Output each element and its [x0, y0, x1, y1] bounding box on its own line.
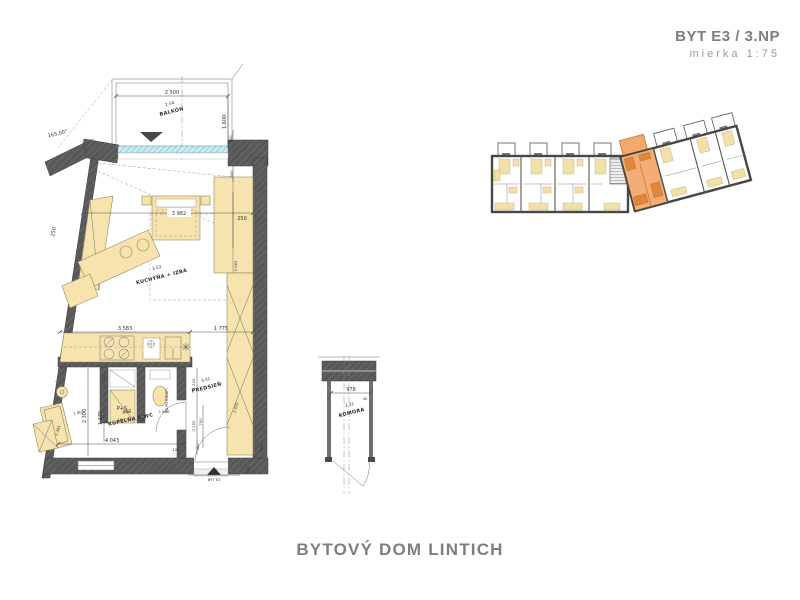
room-number-hall: 3.51: [201, 376, 212, 383]
komora-left-wall: [327, 381, 331, 457]
left-wall-stub: [45, 143, 86, 176]
dim-washer-top: 325: [101, 373, 106, 381]
komora-name: KOMORA: [338, 407, 365, 419]
bath-door-arc: [156, 402, 186, 432]
dim-balcony-depth: 1 600: [222, 115, 228, 129]
cistern: [150, 370, 170, 379]
bar-stool-a: [120, 246, 132, 258]
dim-room-length: 3 982: [172, 211, 186, 217]
entrance-label: BYT E3: [208, 478, 220, 482]
dim-590: 590: [259, 443, 264, 451]
dim-kitchen-run: 3 583: [118, 326, 132, 332]
sheet-footer: BYTOVÝ DOM LINTICH: [0, 540, 800, 560]
dim-pier-top: 200: [228, 135, 233, 143]
angle-label: 165.00°: [47, 129, 68, 140]
komora-door-leaf: [333, 461, 363, 486]
left-window-pier: [81, 139, 119, 163]
wc-note: (O.PO STROP): [165, 388, 169, 412]
dim-pier-bottom: 800: [229, 170, 234, 178]
dim-bath-length: 4 043: [105, 438, 119, 444]
komora-dim-right: 40: [363, 396, 368, 401]
room-number-balcony: 2.54: [165, 100, 176, 107]
neighbor-line: [58, 80, 112, 148]
window-sill: [118, 153, 228, 159]
nightstand-left: [142, 196, 151, 205]
bottom-wall: [43, 458, 268, 474]
balcony-glazing: [118, 146, 228, 153]
room-name-balcony: BALKÓN: [159, 105, 185, 118]
komora-right-wall: [369, 381, 373, 457]
dim-floor-edge: 125: [172, 447, 180, 452]
right-wall: [253, 158, 267, 472]
dim-550: 550: [195, 443, 200, 451]
nightstand-right: [201, 196, 210, 205]
overview-angled-wing: [616, 110, 751, 211]
right-wardrobe: [214, 177, 253, 273]
main-floor-plan: 2 500 1 600 165.00° 250 3 982 250 3 063 …: [33, 64, 371, 482]
dim-wardrobe-length: 3 063: [233, 260, 238, 271]
komora-number: 1.21: [345, 401, 356, 408]
storage-plan: 978 40 7 1.21 KOMORA: [318, 356, 380, 494]
bed-pillows: [156, 199, 196, 207]
drawing-sheet: BYT E3 / 3.NP mierka 1:75: [0, 0, 800, 600]
hall-wall-upper: [177, 367, 186, 400]
dim-door-width: 700: [198, 418, 203, 426]
dim-wardrobe-depth: 250: [237, 216, 247, 222]
tall-closet: [227, 273, 253, 455]
room-number-living: 3.53: [152, 264, 163, 271]
overview-plan: [492, 110, 751, 212]
bar-stool-b: [137, 239, 149, 251]
dim-balcony-width: 2 500: [165, 90, 179, 96]
komora-jamb-left: [325, 457, 332, 462]
direction-triangle-icon: [140, 132, 163, 142]
dim-hall-top: 1 775: [214, 326, 228, 332]
dim-bottom-right: 250: [246, 466, 251, 474]
floor-plan-canvas: 2 500 1 600 165.00° 250 3 982 250 3 063 …: [0, 0, 800, 600]
light-symbol-icon: [182, 343, 190, 351]
corner-line: [232, 64, 243, 79]
dim-wall-thickness: 250: [50, 227, 58, 237]
dim-hall-wall: 2 150: [191, 420, 196, 431]
komora-door-arc: [363, 461, 369, 486]
dim-bath-inner: 1 175: [98, 411, 104, 425]
washbasin: [57, 387, 68, 398]
sink: [143, 338, 160, 359]
washer-label: P+S: [117, 406, 127, 412]
komora-dim-width: 978: [346, 387, 356, 393]
overview-straight-wing: [492, 143, 628, 212]
project-title: BYTOVÝ DOM LINTICH: [296, 540, 503, 559]
